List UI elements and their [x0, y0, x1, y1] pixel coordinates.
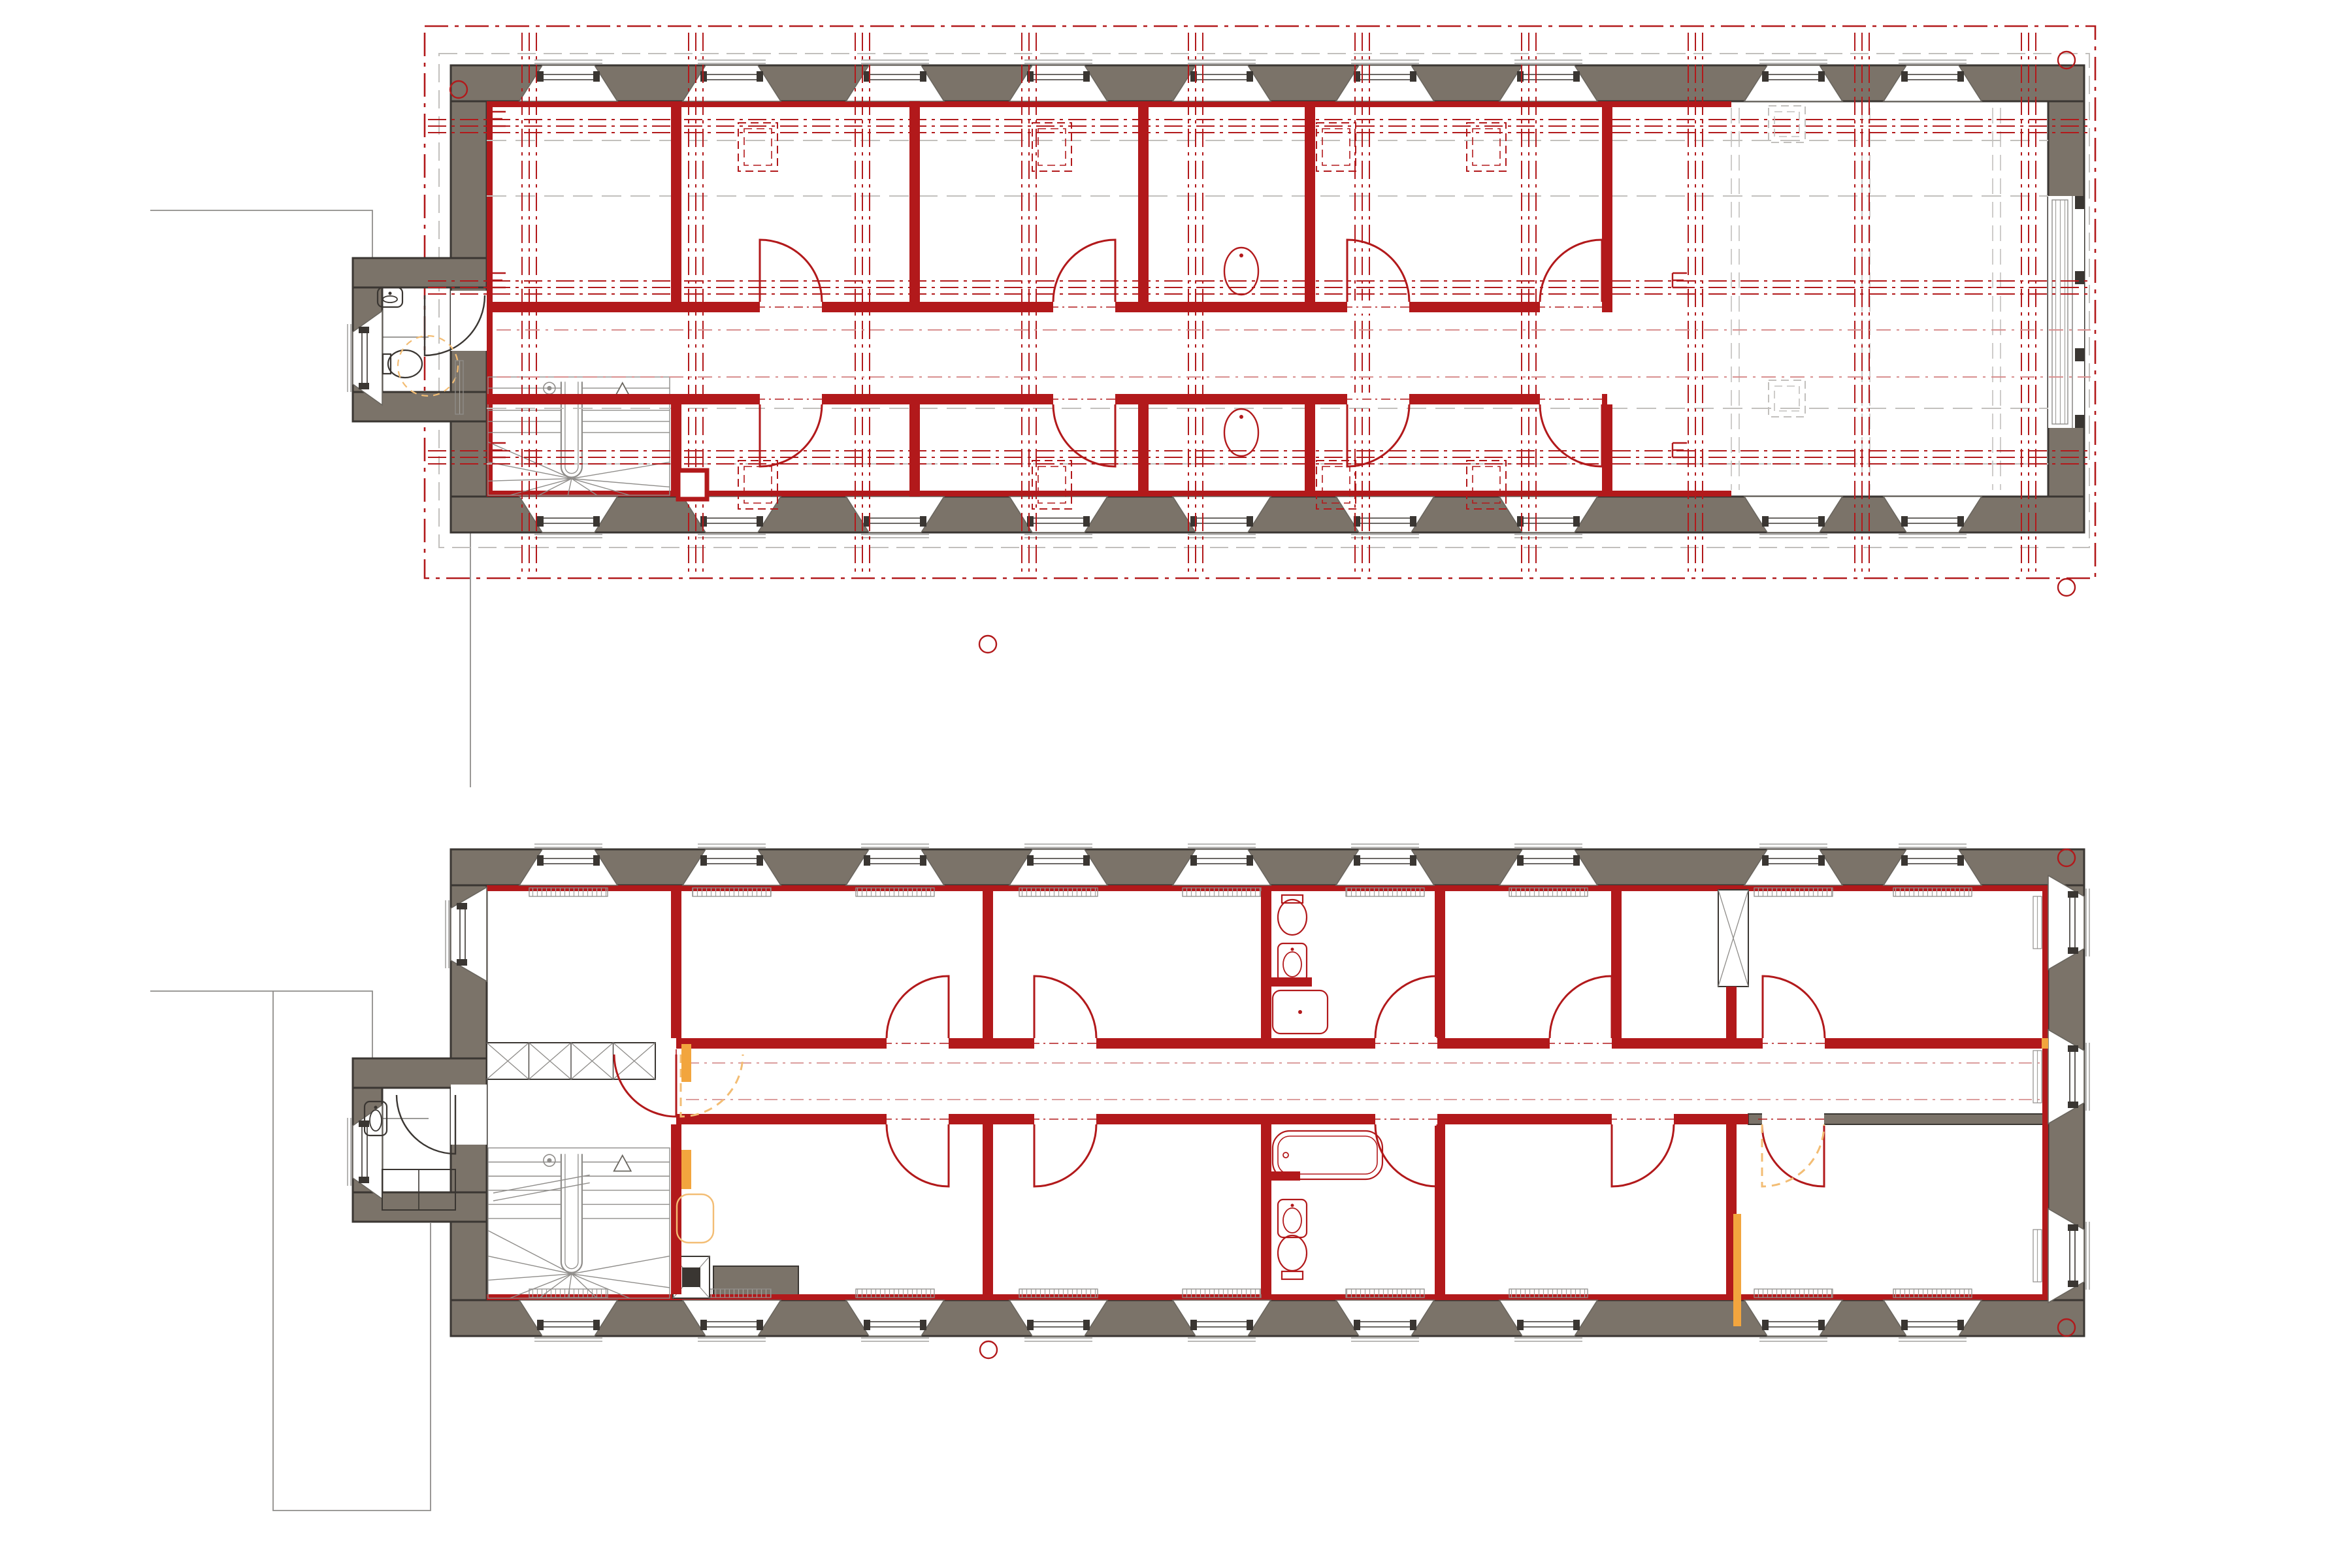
floor-plan-sheet [0, 0, 2352, 1568]
drawing-canvas [0, 0, 2352, 1568]
